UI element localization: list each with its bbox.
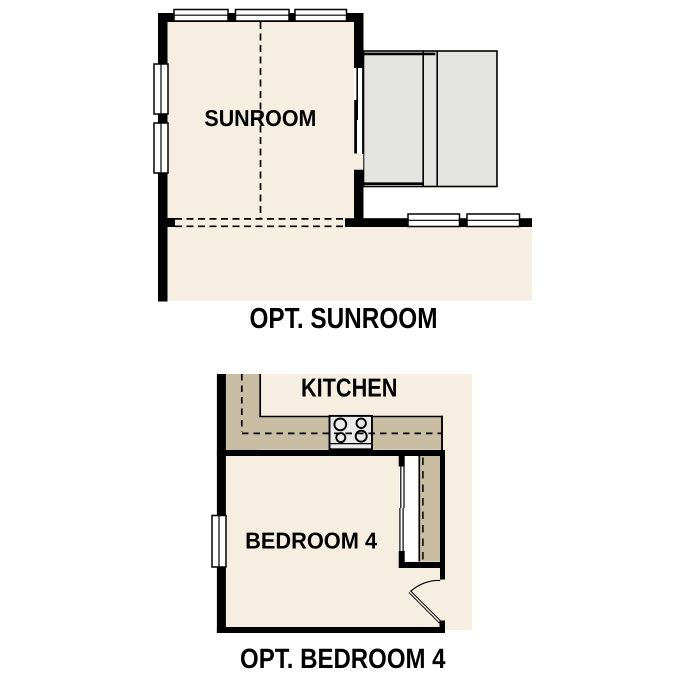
svg-text:OPT. SUNROOM: OPT. SUNROOM	[250, 303, 438, 335]
svg-text:KITCHEN: KITCHEN	[301, 372, 398, 402]
svg-text:BEDROOM 4: BEDROOM 4	[245, 527, 377, 553]
svg-text:SUNROOM: SUNROOM	[204, 105, 316, 131]
svg-text:OPT. BEDROOM 4: OPT. BEDROOM 4	[240, 643, 446, 674]
